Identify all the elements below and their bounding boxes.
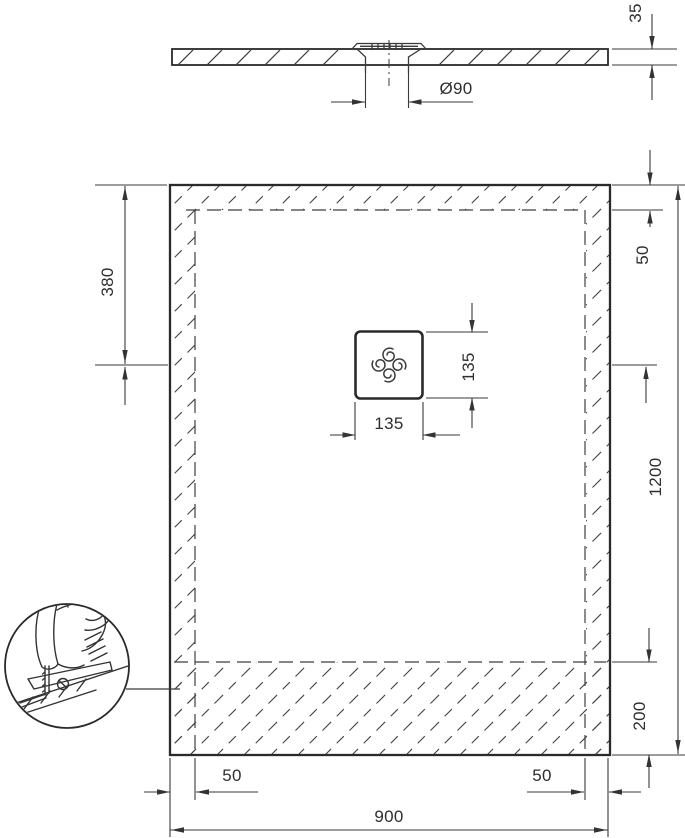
dim-label-tray-length: 1200	[646, 449, 666, 505]
technical-drawing: 35 Ø90 380 50 135 135 1200 200 50 50 900	[0, 0, 685, 838]
dim-label-cut-zone-right: 50	[514, 766, 570, 786]
dim-label-drain-height: 135	[459, 339, 479, 395]
dim-label-tray-width: 900	[361, 807, 417, 827]
drawing-linework	[0, 0, 685, 838]
drain-section	[352, 40, 426, 86]
section-view	[172, 14, 677, 108]
dim-label-drain-diameter: Ø90	[428, 79, 484, 99]
dim-label-cut-zone-top: 50	[633, 227, 653, 283]
dim-label-cut-zone-left: 50	[204, 766, 260, 786]
dim-label-cut-zone-bottom: 200	[630, 688, 650, 744]
plan-view	[95, 150, 685, 837]
jigsaw-detail-callout	[5, 580, 180, 728]
drain-cover	[356, 332, 423, 399]
dim-label-tray-thickness: 35	[626, 0, 646, 41]
dim-label-drain-offset-top: 380	[98, 254, 118, 310]
cut-zone-hatch	[171, 186, 609, 754]
dim-label-drain-width: 135	[361, 414, 417, 434]
